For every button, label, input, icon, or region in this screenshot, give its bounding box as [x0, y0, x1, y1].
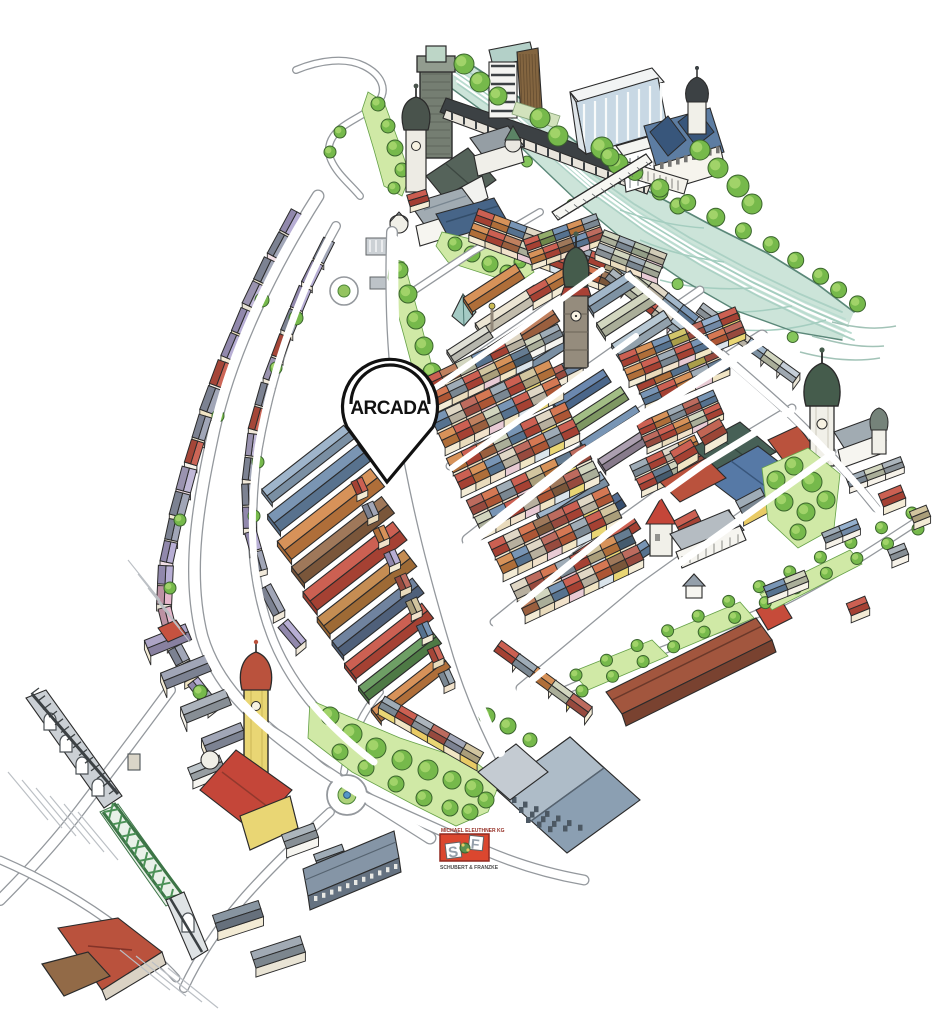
svg-text:MICHAEL ELEUTHNER KG: MICHAEL ELEUTHNER KG: [441, 828, 505, 834]
svg-text:SCHUBERT & FRANZKE: SCHUBERT & FRANZKE: [440, 865, 499, 871]
svg-text:S: S: [447, 843, 459, 861]
svg-text:ARCADA: ARCADA: [350, 398, 430, 419]
